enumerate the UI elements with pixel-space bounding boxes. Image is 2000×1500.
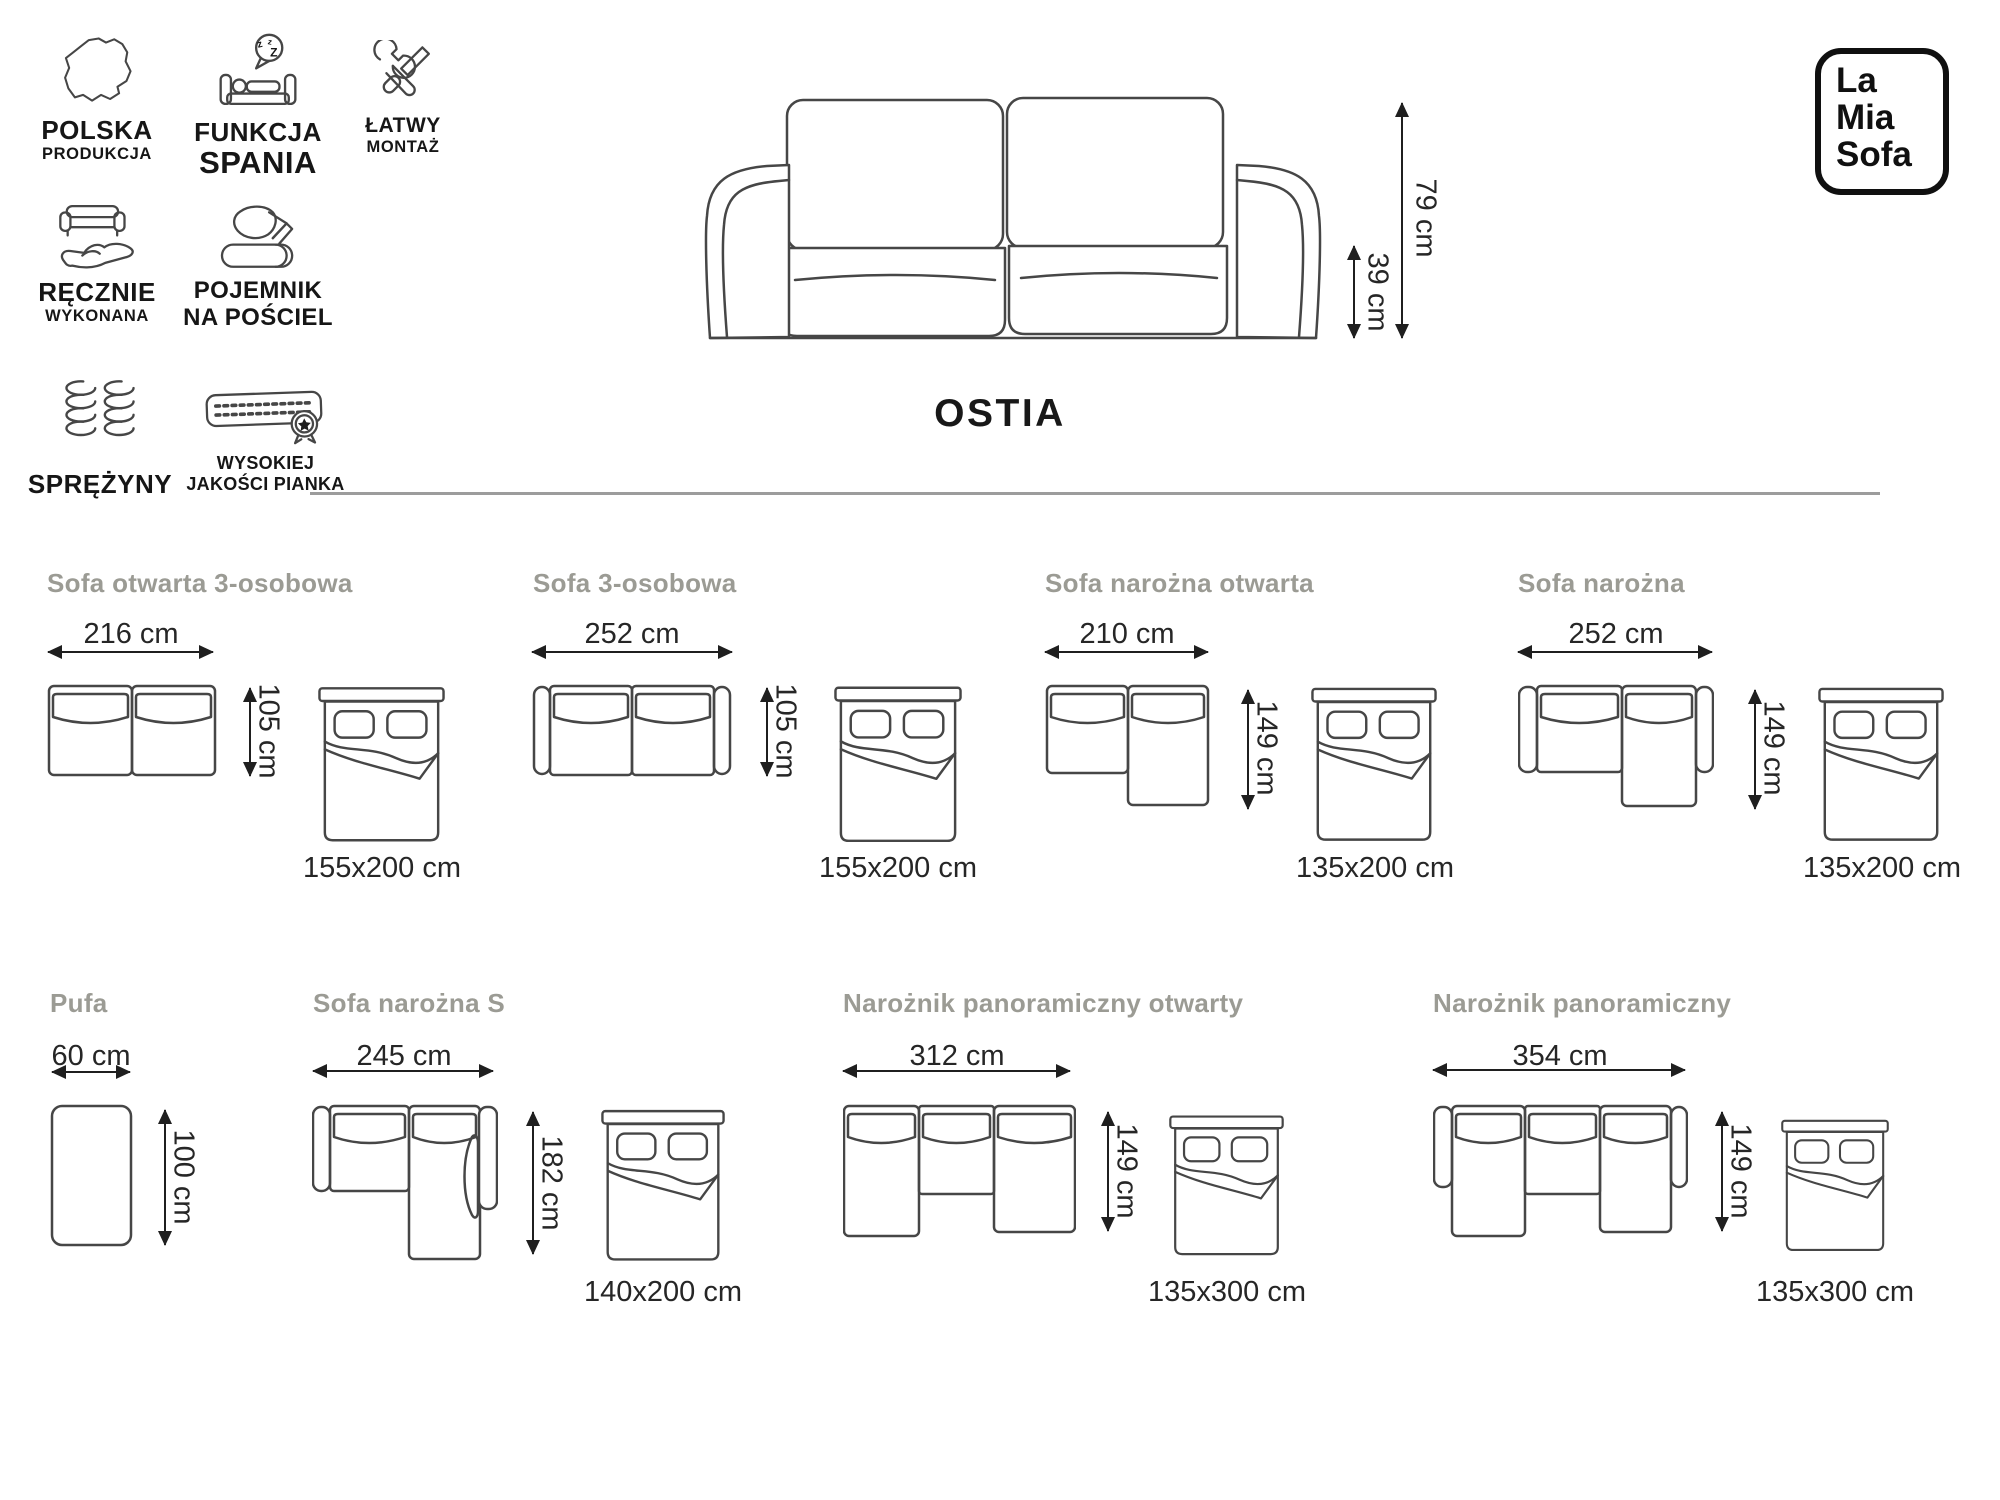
config-title: Sofa otwarta 3-osobowa — [47, 568, 353, 599]
handmade-icon — [53, 204, 141, 276]
sofa-topview — [532, 684, 732, 777]
width-arrow — [1518, 651, 1712, 653]
config-title: Sofa narożna otwarta — [1045, 568, 1314, 599]
bed-topview — [601, 1109, 725, 1263]
config-width-label: 312 cm — [909, 1040, 1004, 1073]
poland-map-icon — [56, 36, 138, 108]
config-title: Sofa narożna — [1518, 568, 1685, 599]
feature-sublabel: SPANIA — [199, 147, 317, 180]
tools-icon — [370, 40, 436, 112]
feature-label: POJEMNIK — [194, 278, 323, 305]
width-arrow — [1433, 1069, 1685, 1071]
feature-label: FUNKCJA — [194, 118, 322, 147]
feature-wysokiej-jakosci-pianka: WYSOKIEJ JAKOŚCI PIANKA — [183, 388, 348, 495]
bed-topview — [1781, 1109, 1889, 1263]
width-arrow — [843, 1070, 1070, 1072]
sofa-topview — [312, 1103, 498, 1263]
config-width-label: 210 cm — [1079, 618, 1174, 651]
bed-topview — [834, 686, 962, 844]
config-width-label: 245 cm — [356, 1040, 451, 1073]
config-width-label: 216 cm — [83, 618, 178, 651]
config-title: Sofa narożna S — [313, 988, 505, 1019]
feature-sublabel: PRODUKCJA — [42, 145, 152, 164]
brand-line-3: Sofa — [1836, 136, 1943, 173]
bed-topview — [1169, 1109, 1284, 1263]
config-title: Sofa 3-osobowa — [533, 568, 737, 599]
feature-sublabel: NA POŚCIEL — [183, 305, 333, 332]
config-depth-label: 149 cm — [1757, 700, 1790, 795]
bed-size-label: 135x200 cm — [1803, 852, 1961, 885]
feature-label: SPRĘŻYNY — [28, 470, 172, 499]
config-depth-label: 182 cm — [535, 1135, 568, 1230]
bedding-storage-icon — [216, 204, 300, 276]
sofa-topview — [1518, 684, 1714, 808]
config-depth-label: 105 cm — [769, 683, 802, 778]
svg-text:Z: Z — [270, 45, 278, 59]
feature-sprezyny: SPRĘŻYNY — [25, 378, 175, 499]
sofa-topview — [1433, 1104, 1688, 1238]
section-divider — [310, 492, 1880, 495]
bed-topview — [1818, 686, 1944, 844]
high-quality-foam-icon — [201, 388, 331, 446]
config-depth-label: 149 cm — [1250, 700, 1283, 795]
bed-topview — [1311, 686, 1437, 844]
brand-line-2: Mia — [1836, 99, 1943, 136]
bed-size-label: 140x200 cm — [584, 1276, 742, 1309]
bed-topview — [318, 686, 445, 844]
feature-pojemnik-na-posciel: POJEMNIK NA POŚCIEL — [183, 204, 333, 332]
width-arrow — [1045, 651, 1208, 653]
sofa-front-illustration — [683, 60, 1343, 340]
brand-line-1: La — [1836, 62, 1943, 99]
bed-size-label: 135x300 cm — [1148, 1276, 1306, 1309]
bed-size-label: 155x200 cm — [819, 852, 977, 885]
sofa-topview — [1045, 684, 1210, 808]
spec-sheet: POLSKA PRODUKCJA z z Z FUNKCJA SPANIA — [0, 0, 2000, 1500]
sofa-topview — [47, 684, 217, 777]
feature-sublabel: MONTAŻ — [367, 138, 440, 157]
config-depth-label: 100 cm — [167, 1129, 200, 1224]
width-arrow — [48, 651, 213, 653]
seat-height-label: 39 cm — [1361, 253, 1394, 332]
feature-latwy-montaz: ŁATWY MONTAŻ — [328, 40, 478, 157]
config-title: Pufa — [50, 988, 108, 1019]
brand-logo: La Mia Sofa — [1815, 48, 1949, 195]
config-title: Narożnik panoramiczny — [1433, 988, 1731, 1019]
bed-size-label: 155x200 cm — [303, 852, 461, 885]
height-arrow — [1401, 103, 1403, 338]
feature-sublabel: WYKONANA — [45, 307, 149, 326]
width-arrow — [313, 1070, 493, 1072]
seat-height-arrow — [1353, 246, 1355, 338]
config-width-label: 252 cm — [584, 618, 679, 651]
width-arrow — [52, 1071, 130, 1073]
feature-label: RĘCZNIE — [38, 278, 156, 307]
bed-size-label: 135x200 cm — [1296, 852, 1454, 885]
feature-label: POLSKA — [41, 116, 152, 145]
feature-label: ŁATWY — [365, 114, 441, 138]
height-label: 79 cm — [1409, 179, 1442, 258]
config-title: Narożnik panoramiczny otwarty — [843, 988, 1243, 1019]
config-depth-label: 149 cm — [1724, 1123, 1757, 1218]
sleep-function-icon: z z Z — [215, 32, 301, 116]
product-title: OSTIA — [800, 392, 1200, 436]
feature-label: WYSOKIEJ — [217, 453, 314, 474]
sofa-topview — [843, 1104, 1076, 1238]
bed-size-label: 135x300 cm — [1756, 1276, 1914, 1309]
feature-polska-produkcja: POLSKA PRODUKCJA — [22, 36, 172, 165]
config-depth-label: 149 cm — [1110, 1123, 1143, 1218]
pouf-topview — [50, 1104, 133, 1247]
springs-icon — [54, 378, 146, 446]
width-arrow — [532, 651, 732, 653]
feature-funkcja-spania: z z Z FUNKCJA SPANIA — [188, 32, 328, 180]
config-width-label: 252 cm — [1568, 618, 1663, 651]
config-depth-label: 105 cm — [252, 683, 285, 778]
feature-recznie-wykonana: RĘCZNIE WYKONANA — [22, 204, 172, 327]
